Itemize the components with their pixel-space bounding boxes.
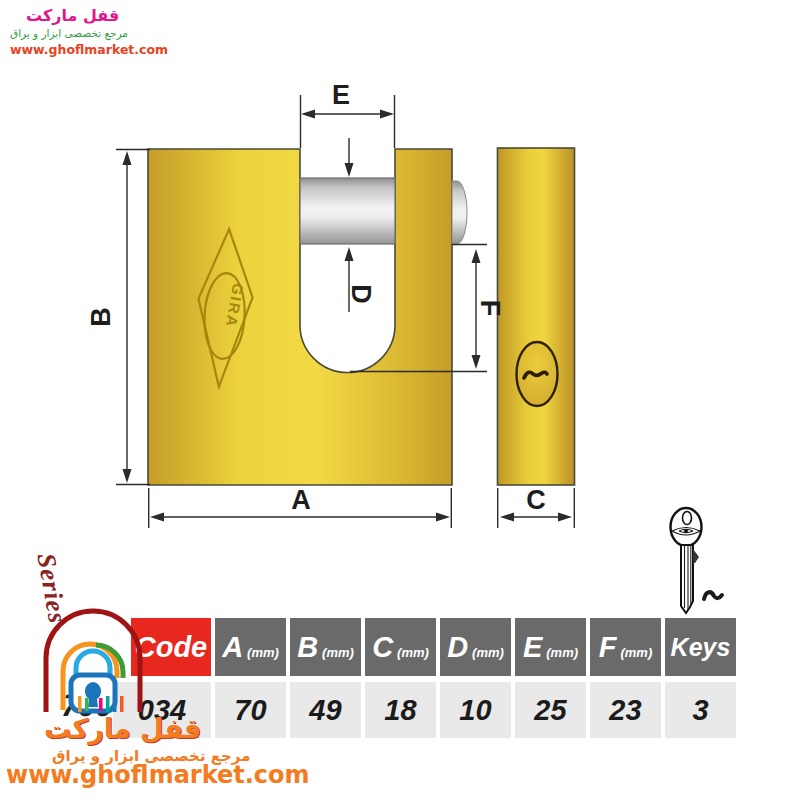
table-header-C: C (mm) xyxy=(365,618,436,676)
shackle-end-cap xyxy=(452,181,467,244)
key-blank-icon xyxy=(671,508,723,613)
padlock-technical-drawing: GIRA xyxy=(0,0,800,625)
padlock-side-body xyxy=(498,148,575,485)
table-value-F: 23 xyxy=(590,682,661,738)
shackle-cylinder xyxy=(300,178,395,244)
table-header-B: B (mm) xyxy=(290,618,361,676)
table-value-C: 18 xyxy=(365,682,436,738)
table-header-A: A (mm) xyxy=(215,618,286,676)
table-header-E: E (mm) xyxy=(515,618,586,676)
table-value-keys: 3 xyxy=(665,682,736,738)
watermark-brand-text: قفل مارکت xyxy=(44,713,201,744)
product-spec-image: GIRA xyxy=(0,0,800,800)
table-header-keys: Keys xyxy=(665,618,736,676)
watermark-top-brand-text: قفل مارکت xyxy=(26,6,119,25)
watermark-url-text: www.ghoflmarket.com xyxy=(6,761,310,789)
ghoflmarket-logo-icon xyxy=(38,598,153,716)
table-value-E: 25 xyxy=(515,682,586,738)
table-value-B: 49 xyxy=(290,682,361,738)
watermark-top-tagline-text: مرجع تخصصی ابزار و یراق xyxy=(10,27,128,39)
dim-label-F: F xyxy=(475,300,505,317)
table-header-F: F (mm) xyxy=(590,618,661,676)
dim-label-A: A xyxy=(291,485,311,515)
dim-label-D: D xyxy=(346,284,376,304)
table-value-D: 10 xyxy=(440,682,511,738)
table-header-D: D (mm) xyxy=(440,618,511,676)
key-squiggle-icon xyxy=(704,592,722,599)
dim-label-E: E xyxy=(332,80,350,110)
dim-label-B: B xyxy=(86,307,116,327)
dim-label-C: C xyxy=(526,485,546,515)
watermark-top-url-text: www.ghoflmarket.com xyxy=(10,42,168,57)
table-value-A: 70 xyxy=(215,682,286,738)
